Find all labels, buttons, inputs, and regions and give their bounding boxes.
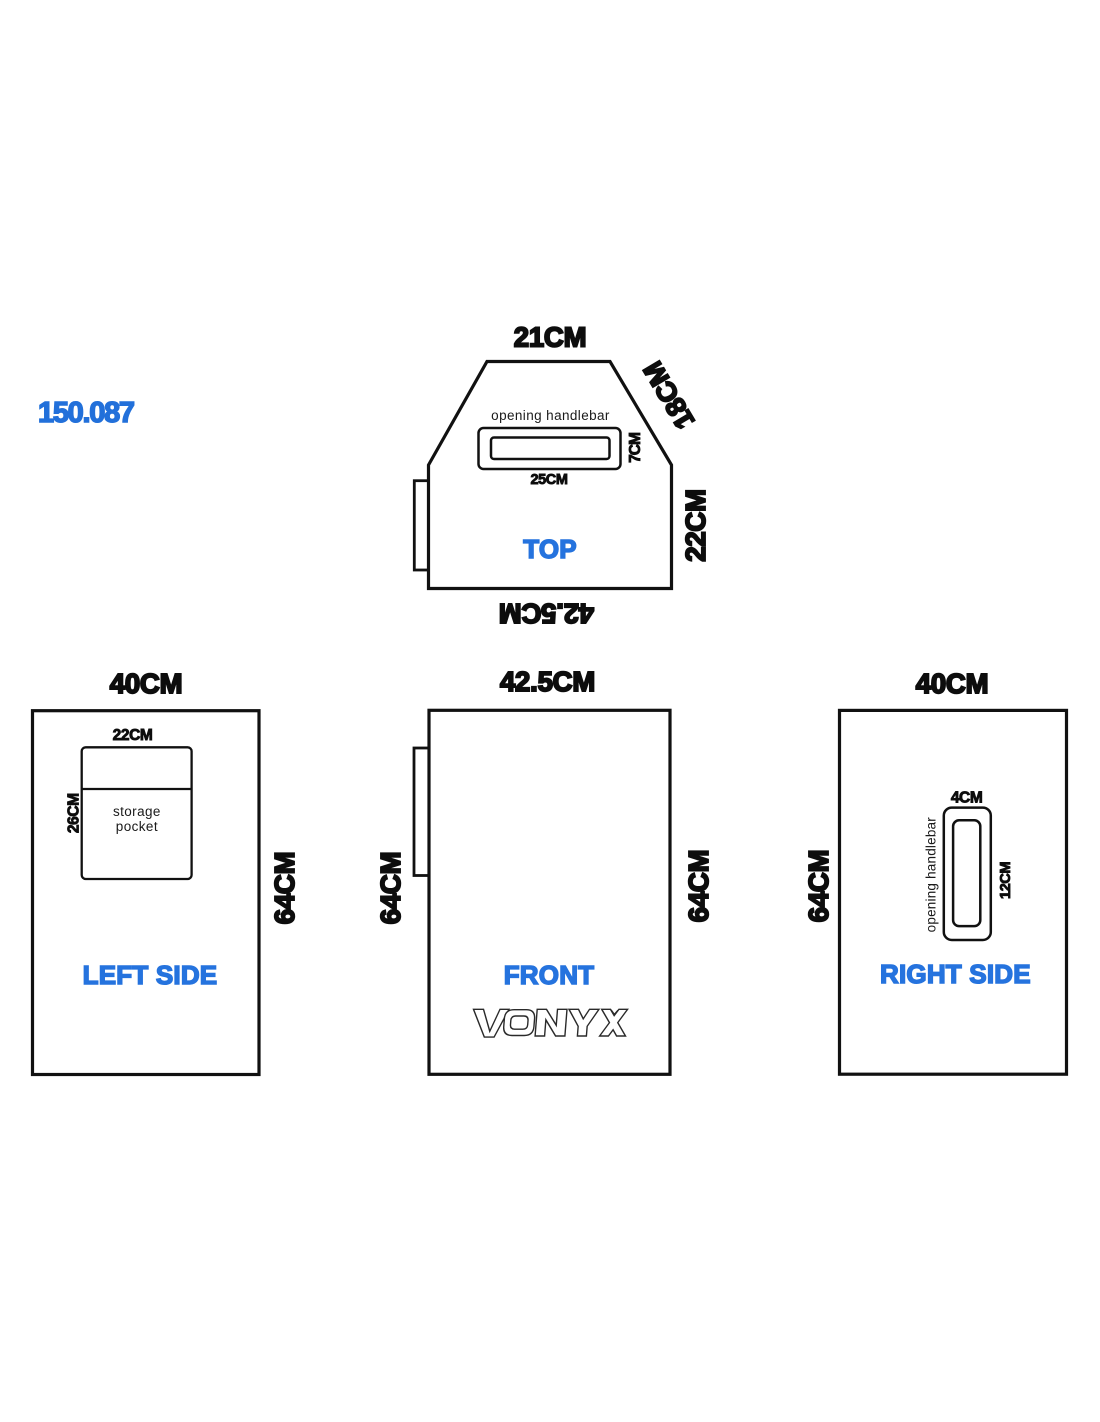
svg-text:pocket: pocket [116, 819, 158, 834]
svg-text:64CM: 64CM [683, 850, 714, 923]
svg-text:42.5CM: 42.5CM [499, 598, 594, 629]
svg-text:42.5CM: 42.5CM [500, 666, 595, 697]
svg-text:opening handlebar: opening handlebar [491, 408, 610, 423]
svg-text:12CM: 12CM [998, 862, 1014, 899]
svg-text:21CM: 21CM [514, 322, 587, 353]
svg-text:LEFT SIDE: LEFT SIDE [83, 960, 218, 990]
svg-text:40CM: 40CM [916, 668, 989, 699]
svg-text:22CM: 22CM [680, 489, 711, 562]
svg-text:22CM: 22CM [113, 727, 153, 744]
svg-text:RIGHT SIDE: RIGHT SIDE [880, 959, 1031, 989]
svg-text:150.087: 150.087 [38, 397, 134, 429]
svg-text:64CM: 64CM [269, 852, 300, 925]
svg-text:64CM: 64CM [803, 850, 834, 923]
svg-text:TOP: TOP [523, 534, 577, 564]
svg-text:25CM: 25CM [530, 472, 567, 488]
svg-text:FRONT: FRONT [504, 960, 595, 990]
svg-text:opening handlebar: opening handlebar [924, 817, 939, 933]
svg-text:7CM: 7CM [627, 433, 644, 463]
svg-text:40CM: 40CM [110, 668, 183, 699]
svg-text:storage: storage [113, 804, 161, 819]
svg-text:4CM: 4CM [951, 789, 983, 806]
svg-text:64CM: 64CM [375, 852, 406, 925]
svg-text:26CM: 26CM [65, 793, 82, 833]
